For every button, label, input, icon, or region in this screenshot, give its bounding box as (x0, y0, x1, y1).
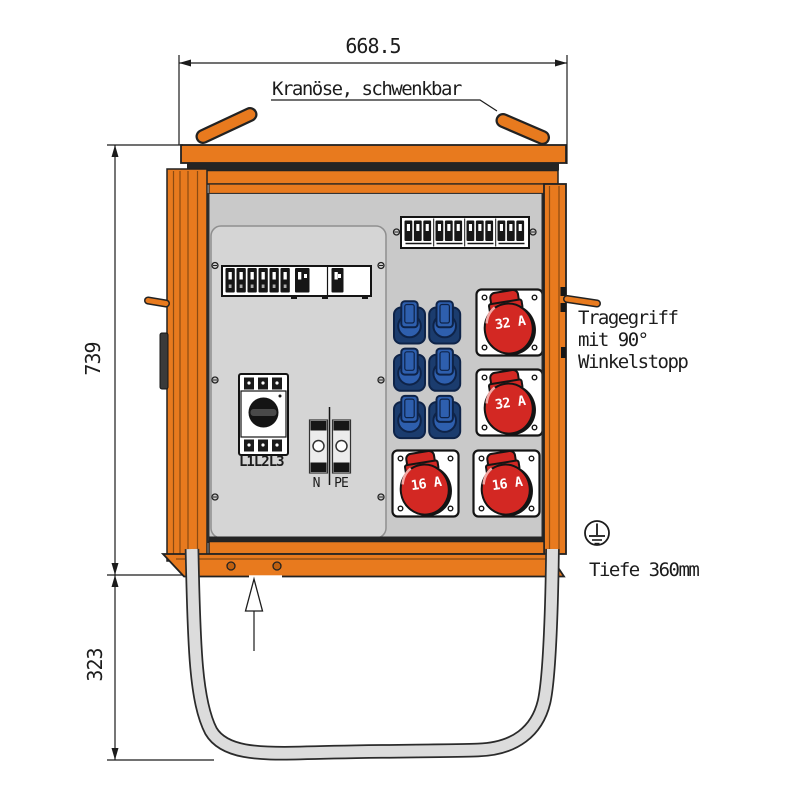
breaker-toggle (240, 272, 243, 280)
cee-socket-32a-2: 32 A (477, 367, 543, 439)
earth-icon (585, 521, 609, 545)
breaker-module (259, 268, 268, 293)
breaker-toggle (457, 224, 460, 231)
breaker-toggle (509, 224, 512, 231)
breaker-toggle (488, 224, 491, 231)
handle-label-line1: Tragegriff (578, 307, 677, 329)
cabinet-door-left (160, 169, 207, 561)
breaker-module (237, 268, 246, 293)
breaker-toggle (447, 224, 450, 231)
handle-annotation: Tragegriff mit 90° Winkelstopp (578, 307, 688, 373)
earth-terminal-label: PE (334, 476, 348, 491)
breaker-module (270, 268, 279, 293)
cee-socket-16a-1: 16 A (393, 448, 459, 520)
door-handle-left (148, 301, 166, 304)
cee-socket-32a-1: 32 A (477, 287, 543, 359)
dim-width-value: 668.5 (345, 34, 400, 58)
dim-height-body-value: 739 (81, 342, 105, 375)
blue-socket (394, 301, 425, 343)
blue-socket (429, 396, 460, 438)
cabinet-base (163, 554, 564, 580)
stand-tube (192, 549, 553, 753)
neutral-label: N (313, 476, 320, 491)
crane-eye-left (203, 115, 250, 137)
breaker-toggle (500, 224, 503, 231)
mounting-foot (322, 296, 328, 300)
handle-label-line2: mit 90° (578, 329, 648, 351)
breaker-toggle (519, 224, 522, 231)
carry-handle-right (567, 299, 597, 304)
breaker-module-wide (332, 268, 344, 293)
breaker-toggle (407, 224, 410, 231)
terminal-pe (333, 420, 351, 473)
technical-drawing-canvas: L1L2L3 N PE 32 A 32 A 16 A 16 (0, 0, 800, 800)
top-breaker-strip (401, 217, 529, 248)
breaker-module (248, 268, 257, 293)
breaker-module (226, 268, 235, 293)
handle-label-line3: Winkelstopp (578, 351, 688, 373)
n-pe-terminals: N PE (310, 407, 351, 491)
crane-leader-line (271, 100, 497, 111)
breaker-toggle (273, 272, 276, 280)
crane-eye-right (503, 121, 543, 138)
breaker-toggle (478, 224, 481, 231)
main-switch-label: L1L2L3 (239, 454, 284, 470)
breaker-toggle (229, 272, 232, 280)
door-seal-block (160, 333, 168, 389)
mounting-foot (291, 296, 297, 300)
breaker-module-wide (295, 268, 310, 293)
left-breaker-row (222, 266, 371, 299)
terminal-n (310, 420, 328, 473)
crane-annotation: Kranöse, schwenkbar (271, 78, 497, 111)
crane-label: Kranöse, schwenkbar (272, 78, 462, 100)
breaker-toggle (438, 224, 441, 231)
breaker-toggle (284, 272, 287, 280)
base-hole (273, 562, 281, 570)
dim-height-stand-value: 323 (83, 648, 107, 681)
depth-label: Tiefe 360mm (589, 559, 699, 581)
hinge-mark (561, 303, 567, 312)
breaker-toggle (469, 224, 472, 231)
cable-entry-arrow (246, 579, 263, 651)
breaker-module (281, 268, 290, 293)
cabinet-roof (181, 145, 566, 194)
base-hole (227, 562, 235, 570)
blue-socket (429, 301, 460, 343)
hinge-mark (561, 287, 567, 296)
cabinet-sill (209, 542, 544, 555)
breaker-toggle (416, 224, 419, 231)
breaker-toggle (251, 272, 254, 280)
cabinet-wall-right (542, 184, 567, 554)
hinge-mark (561, 347, 566, 358)
main-switch: L1L2L3 (239, 374, 288, 470)
blue-socket (394, 396, 425, 438)
breaker-toggle (426, 224, 429, 231)
distribution-board-drawing: L1L2L3 N PE 32 A 32 A 16 A 16 (0, 0, 800, 800)
mounting-foot (362, 296, 368, 300)
breaker-toggle (262, 272, 265, 280)
cee-socket-16a-2: 16 A (474, 448, 540, 520)
blue-socket (429, 349, 460, 391)
blue-socket (394, 349, 425, 391)
